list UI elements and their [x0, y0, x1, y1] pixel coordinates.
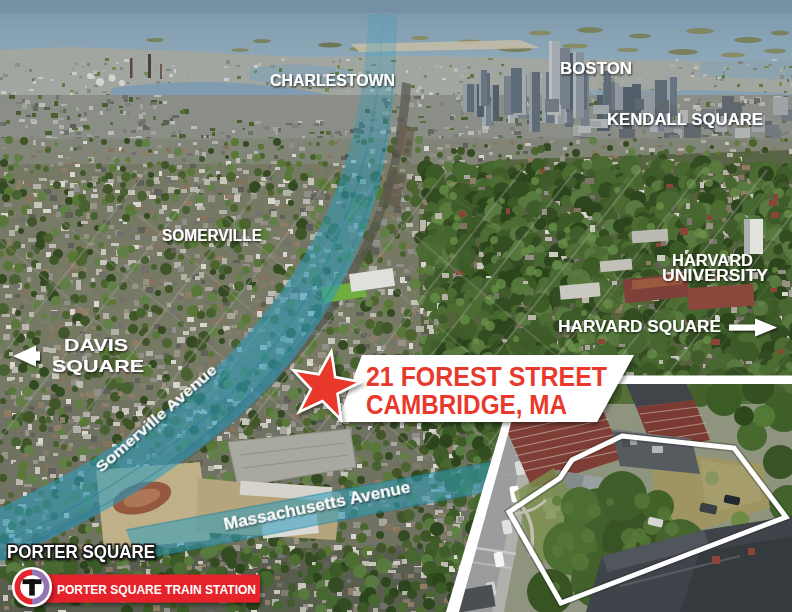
svg-text:UNIVERSITY: UNIVERSITY [662, 267, 768, 284]
svg-text:HARVARD SQUARE: HARVARD SQUARE [558, 318, 721, 335]
svg-text:DAVIS: DAVIS [64, 336, 128, 355]
svg-text:KENDALL SQUARE: KENDALL SQUARE [607, 111, 763, 128]
svg-text:21 FOREST STREET: 21 FOREST STREET [366, 362, 607, 392]
svg-text:BOSTON: BOSTON [560, 60, 632, 77]
svg-text:SQUARE: SQUARE [52, 357, 144, 376]
svg-text:PORTER SQUARE: PORTER SQUARE [7, 542, 155, 562]
svg-text:CHARLESTOWN: CHARLESTOWN [270, 72, 395, 89]
svg-text:PORTER SQUARE TRAIN STATION: PORTER SQUARE TRAIN STATION [57, 583, 256, 597]
svg-text:CAMBRIDGE, MA: CAMBRIDGE, MA [366, 390, 567, 420]
svg-text:SOMERVILLE: SOMERVILLE [162, 227, 262, 244]
